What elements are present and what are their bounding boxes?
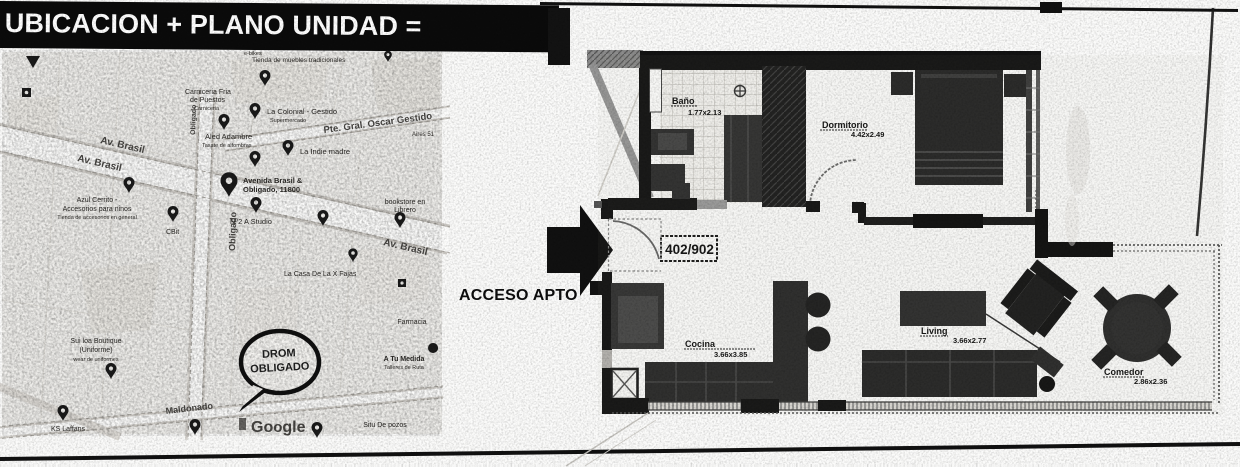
svg-text:Supermercado: Supermercado [270,118,306,124]
svg-text:Farmacia: Farmacia [397,319,426,326]
svg-text:La Colonial - Gestido: La Colonial - Gestido [267,107,337,116]
svg-text:Azul Cerrito -: Azul Cerrito - [77,197,119,204]
svg-text:e-bikes: e-bikes [244,51,262,57]
svg-text:Aled Adambre: Aled Adambre [205,132,252,141]
svg-text:Situ De pozos: Situ De pozos [363,422,407,429]
svg-text:Tienda de muebles tradicionale: Tienda de muebles tradicionales [252,57,346,64]
svg-text:(Uniforme): (Uniforme) [79,347,112,354]
svg-text:Carniceria: Carniceria [194,106,220,112]
svg-text:de Puestos: de Puestos [190,97,226,104]
svg-text:La Casa De La X Fajas: La Casa De La X Fajas [284,271,357,278]
svg-text:Tasate de alfombras: Tasate de alfombras [202,143,252,149]
svg-text:A Tu Medida: A Tu Medida [384,356,425,363]
svg-text:Avenida Brasil &: Avenida Brasil & [243,176,303,185]
svg-text:CBit: CBit [166,229,179,236]
svg-text:Sui loa Boutique: Sui loa Boutique [71,338,122,345]
svg-text:Talleres de Ruta: Talleres de Ruta [384,365,425,371]
svg-text:La Indie madre: La Indie madre [300,147,350,156]
svg-text:wear de uniformes: wear de uniformes [72,357,118,363]
svg-text:Nº2 A Studio: Nº2 A Studio [230,217,272,226]
svg-text:Google: Google [251,419,306,436]
svg-text:bookstore en: bookstore en [385,199,426,206]
svg-text:DROM: DROM [262,347,296,361]
svg-text:Tienda de accesorios en genera: Tienda de accesorios en general [57,215,137,221]
svg-text:Accesorios para ninos: Accesorios para ninos [63,206,132,213]
svg-text:KS Laffans: KS Laffans [51,426,86,433]
svg-text:Obligado, 11800: Obligado, 11800 [243,185,300,194]
svg-text:Carniceria Fria: Carniceria Fria [185,89,231,96]
svg-text:Aires 51: Aires 51 [412,132,435,138]
